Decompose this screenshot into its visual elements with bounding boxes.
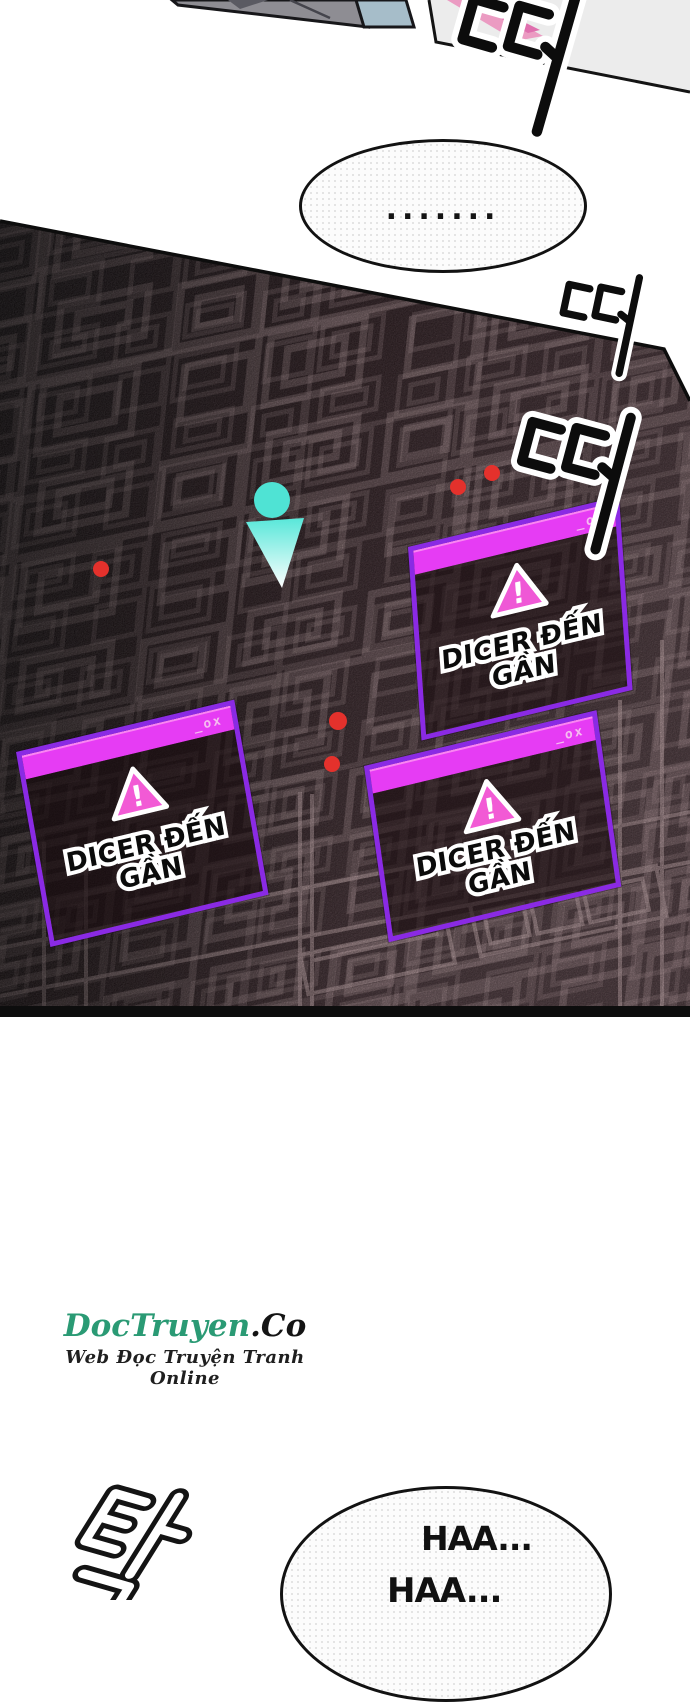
warning-icon: !: [102, 757, 172, 825]
speech-bubble-ellipsis: .......: [299, 139, 587, 273]
watermark: DocTruyen.Co Web Đọc Truyện Tranh Online: [30, 1308, 340, 1389]
breathing-text-line2: HAA...: [387, 1571, 501, 1611]
enemy-dot: [450, 479, 466, 495]
watermark-site: DocTruyen.Co: [30, 1308, 340, 1344]
enemy-dot: [324, 756, 340, 772]
sfx-beep-top-icon: [444, 0, 576, 132]
breathing-text-line1: HAA...: [421, 1519, 532, 1558]
webtoon-page: { "page": { "background": "#ffffff", "ki…: [0, 0, 690, 1600]
watermark-tagline: Web Đọc Truyện Tranh Online: [30, 1347, 340, 1389]
window-controls: _ox: [554, 723, 585, 745]
alert-window-left: _ox ! DICER ĐẾN GẦN: [16, 700, 269, 947]
enemy-dot: [484, 465, 500, 481]
watermark-site-name: DocTruyen: [64, 1308, 250, 1344]
pink-slash: [447, 0, 543, 41]
alert-message: DICER ĐẾN GẦN: [424, 605, 621, 709]
enemy-dot: [329, 712, 347, 730]
alert-window-top-right: _ox ! DICER ĐẾN GẦN: [408, 496, 633, 740]
alert-window-bottom-right: _ox ! DICER ĐẾN GẦN: [364, 710, 621, 942]
player-marker: [246, 482, 304, 588]
warning-icon: !: [455, 769, 523, 837]
window-controls: _ox: [576, 509, 606, 531]
warning-icon: !: [486, 553, 551, 622]
watermark-site-tld: .Co: [250, 1308, 306, 1344]
speech-bubble-breathing: HAA... HAA...: [280, 1486, 612, 1702]
sfx-beep-upper-right-icon: [553, 264, 639, 374]
window-controls: _ox: [193, 712, 224, 734]
map-bottom-border: [0, 1006, 690, 1017]
svg-text:!: !: [511, 575, 526, 612]
top-panel-fragment-left: [172, 0, 414, 27]
sfx-thud-bottom-left-icon: [50, 1481, 202, 1600]
alert-message: DICER ĐẾN GẦN: [43, 807, 254, 913]
ellipsis-text: .......: [386, 186, 501, 227]
enemy-dot: [93, 561, 109, 577]
top-panel-fragment-right: [429, 0, 690, 92]
